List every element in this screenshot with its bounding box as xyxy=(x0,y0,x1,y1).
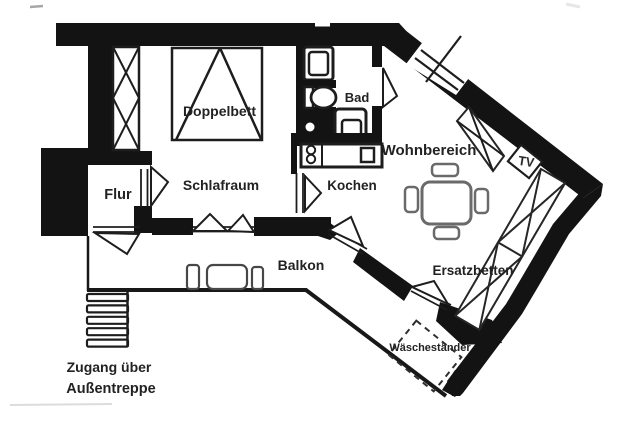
svg-text:Zugang über: Zugang über xyxy=(67,359,152,375)
svg-text:Schlafraum: Schlafraum xyxy=(183,177,259,193)
svg-text:TV: TV xyxy=(517,154,536,170)
svg-text:Kochen: Kochen xyxy=(327,178,377,193)
svg-text:Flur: Flur xyxy=(104,187,132,203)
svg-text:Wäscheständer: Wäscheständer xyxy=(389,342,471,354)
svg-text:Balkon: Balkon xyxy=(278,257,325,273)
svg-text:Bad: Bad xyxy=(345,90,370,105)
svg-text:Wohnbereich: Wohnbereich xyxy=(382,142,477,159)
svg-text:Doppelbett: Doppelbett xyxy=(183,103,256,119)
svg-text:Ersatzbetten: Ersatzbetten xyxy=(432,263,513,278)
svg-text:Außentreppe: Außentreppe xyxy=(66,381,155,397)
